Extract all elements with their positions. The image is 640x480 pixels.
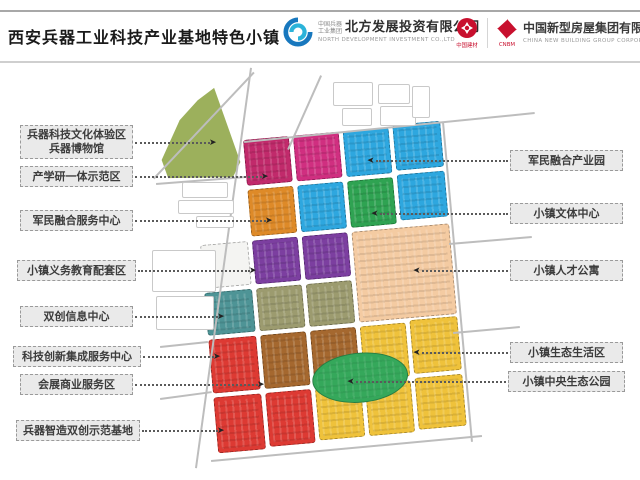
talent-apartment-block [351,223,457,322]
callout-label-left-1: 兵器科技文化体验区 兵器博物馆 [20,125,133,159]
callout-label-right-1: 军民融合产业园 [510,150,623,171]
page-title: 西安兵器工业科技产业基地特色小镇 [8,24,280,48]
cnbm-circle-caption: 中国建材 [456,40,478,48]
callout-connector [143,356,214,358]
callout-label-left-8: 兵器智造双创示范基地 [16,420,140,441]
callout-label-left-3: 军民融合服务中心 [20,210,133,231]
education-zone-block-1 [252,237,302,285]
industry-academia-demo-block-2 [293,132,343,182]
connector-arrow-icon: ➤ [209,138,217,148]
callout-connector [135,176,262,178]
slide: 西安兵器工业科技产业基地特色小镇 中国兵器 工业集团 北方发展投资有限公司 NO… [0,0,640,480]
existing-building-outline [342,108,372,126]
cnbm-company-name: 中国新型房屋集团有限公司 [523,22,640,35]
callout-label-left-5: 双创信息中心 [20,306,133,327]
connector-arrow-icon: ➤ [371,209,379,219]
top-divider [0,10,640,12]
callout-connector [376,160,508,162]
road-line [160,341,208,348]
north-group-name: 中国兵器 工业集团 [318,21,342,35]
existing-building-outline [196,216,234,228]
weapons-smart-mfg-block-2 [265,389,316,447]
callout-label-right-2: 小镇文体中心 [510,203,623,224]
existing-building-outline [378,84,410,104]
callout-connector [142,430,218,432]
eco-living-block-2 [409,316,462,374]
callout-label-right-4: 小镇生态生活区 [510,342,623,363]
callout-label-left-2: 产学研一体示范区 [20,166,133,187]
tech-integration-block-1 [256,284,306,331]
connector-arrow-icon: ➤ [213,352,221,362]
callout-label-left-4: 小镇义务教育配套区 [17,260,136,281]
callout-label-right-3: 小镇人才公寓 [510,260,623,281]
callout-connector [380,213,508,215]
civil-military-industry-park-block-3 [297,181,347,232]
existing-building-outline [412,86,430,118]
connector-arrow-icon: ➤ [347,377,355,387]
callout-connector [135,384,258,386]
civil-military-industry-park-block-2 [392,121,444,171]
tech-integration-block-2 [306,280,356,327]
callout-connector [422,270,508,272]
connector-arrow-icon: ➤ [413,266,421,276]
cnbm-circle-mark: 中国建材 [455,17,479,49]
existing-building-outline [156,296,214,330]
connector-arrow-icon: ➤ [261,172,269,182]
culture-sports-center-block [347,177,397,228]
callout-connector [356,381,506,383]
callout-label-right-5: 小镇中央生态公园 [508,371,625,392]
callout-connector [138,270,250,272]
callout-connector [135,316,218,318]
road-line [453,326,520,334]
connector-arrow-icon: ➤ [217,312,225,322]
weapons-smart-mfg-block-1 [213,393,266,453]
cnbm-pinwheel-mark: CNBM [496,18,518,48]
logo-divider [487,18,488,48]
existing-building-outline [333,82,373,106]
cnbm-company-logo: 中国建材 CNBM 中国新型房屋集团有限公司 CHINA NEW BUILDIN… [455,17,640,49]
civil-military-industry-park-block-1 [343,127,393,177]
existing-building-outline [182,182,228,198]
connector-arrow-icon: ➤ [367,156,375,166]
callout-label-left-6: 科技创新集成服务中心 [13,346,141,367]
connector-arrow-icon: ➤ [249,266,257,276]
north-group-line2: 工业集团 [318,28,342,35]
exhibition-commerce-block-1 [260,331,311,389]
cnbm-pinwheel-caption: CNBM [499,41,515,47]
connector-arrow-icon: ➤ [217,426,225,436]
connector-arrow-icon: ➤ [257,380,265,390]
cnbm-circle-icon [456,17,478,39]
north-group-line1: 中国兵器 [318,21,342,28]
education-zone-block-2 [302,232,352,280]
callout-connector [422,352,508,354]
road-line [449,236,532,245]
cnbm-company-name-en: CHINA NEW BUILDING GROUP CORPORATION [523,38,640,44]
connector-arrow-icon: ➤ [413,348,421,358]
callout-connector [135,220,266,222]
north-company-logo: 中国兵器 工业集团 北方发展投资有限公司 NORTH DEVELOPMENT I… [283,17,480,47]
connector-arrow-icon: ➤ [265,216,273,226]
existing-building-outline [178,200,234,214]
existing-building-outline [380,106,416,126]
north-swirl-icon [283,17,313,47]
callout-label-left-7: 会展商业服务区 [20,374,133,395]
callout-connector [135,142,210,144]
cnbm-pinwheel-icon [496,18,518,40]
civil-military-service-center-block [247,186,297,237]
